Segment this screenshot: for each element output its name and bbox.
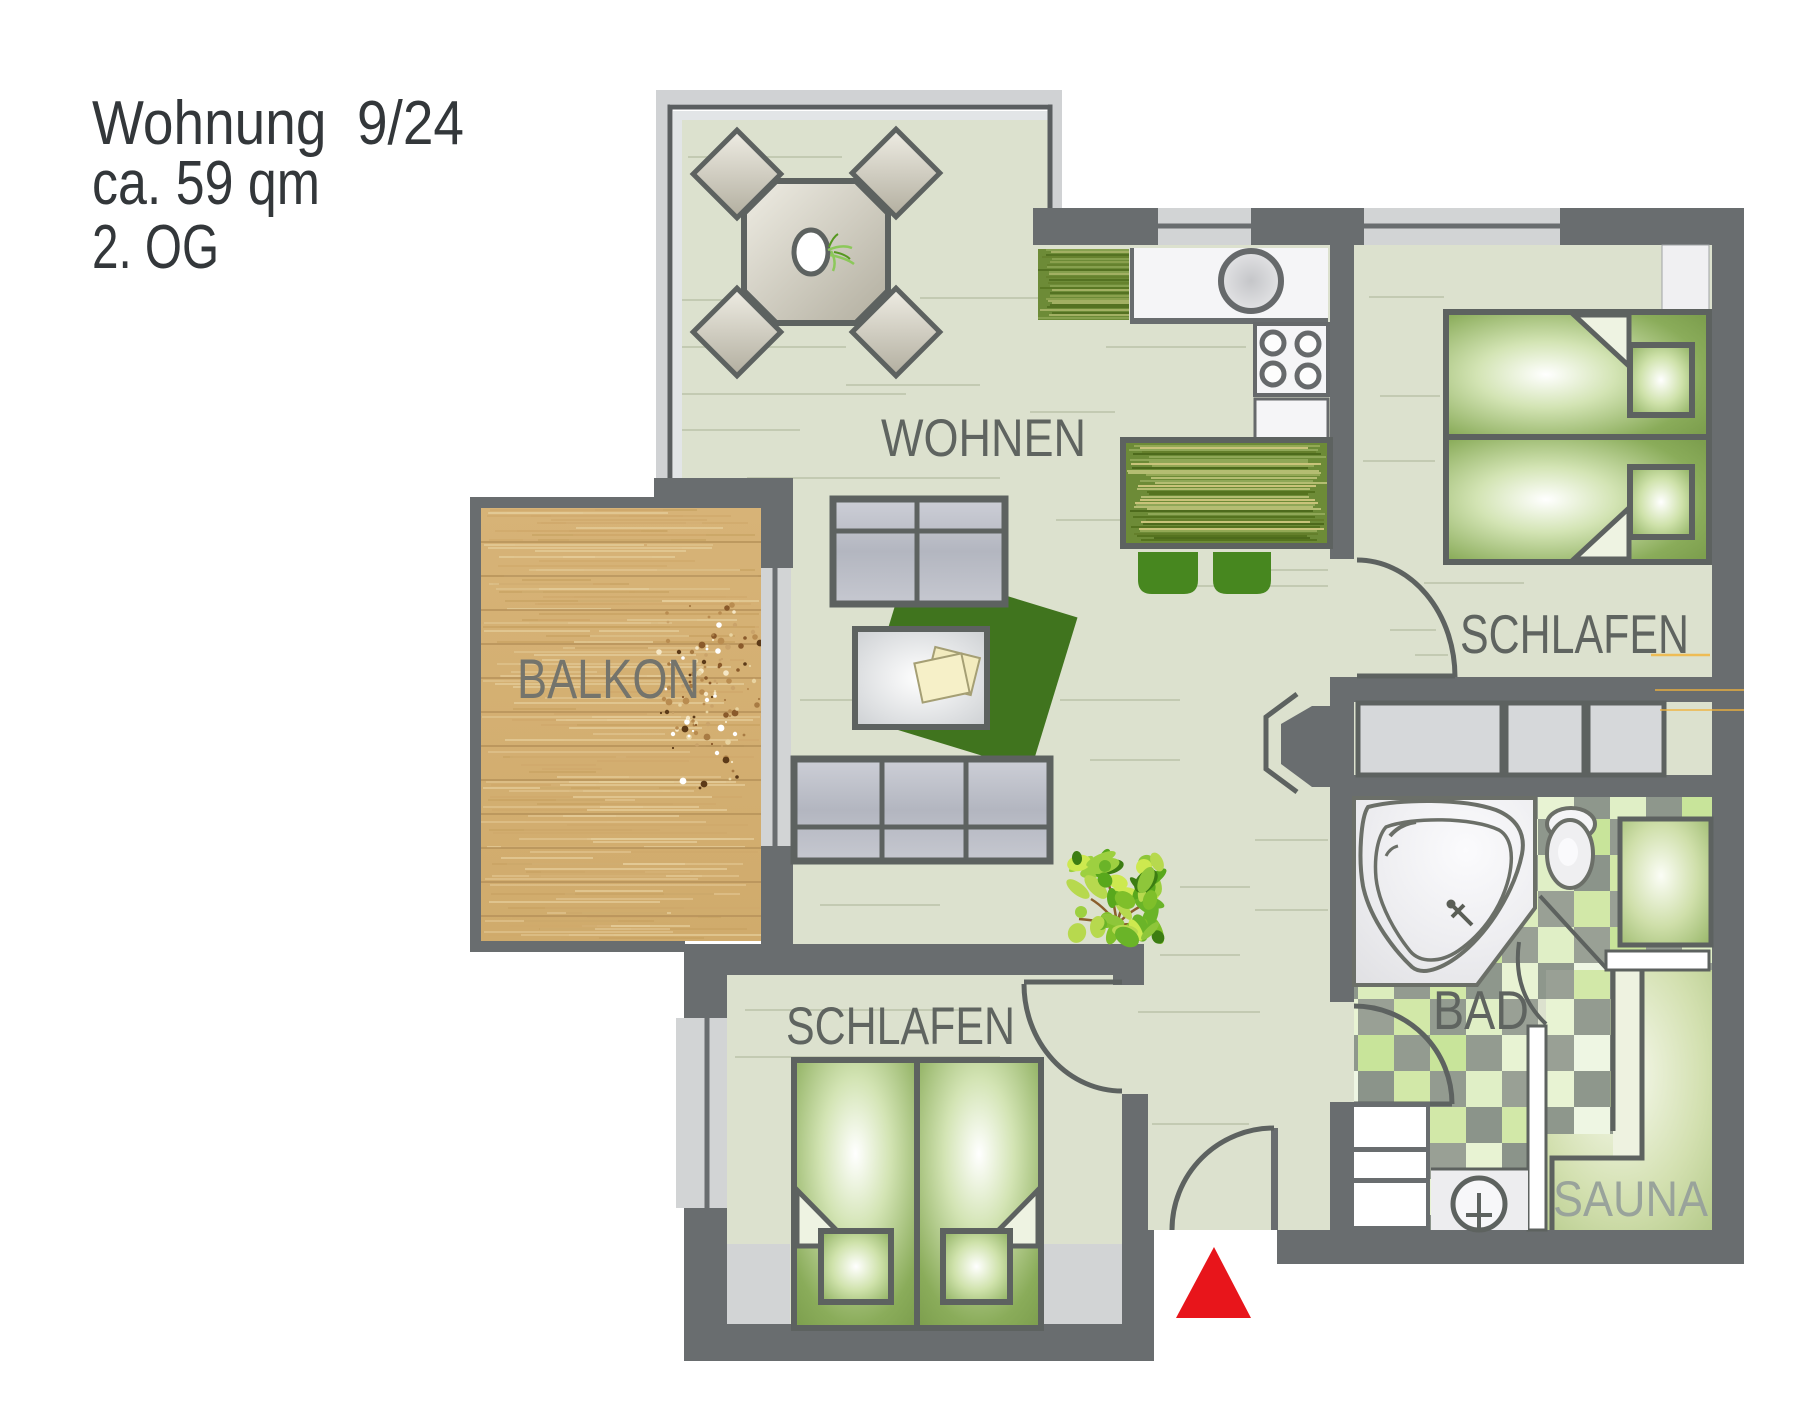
svg-text:WOHNEN: WOHNEN	[881, 409, 1086, 468]
svg-text:BAD: BAD	[1433, 979, 1529, 1041]
svg-text:BALKON: BALKON	[517, 647, 700, 710]
svg-text:SAUNA: SAUNA	[1553, 1171, 1709, 1227]
svg-text:2. OG: 2. OG	[92, 213, 219, 282]
svg-text:SCHLAFEN: SCHLAFEN	[1460, 603, 1689, 665]
svg-text:ca. 59 qm: ca. 59 qm	[92, 149, 320, 218]
svg-text:SCHLAFEN: SCHLAFEN	[786, 997, 1015, 1056]
svg-text:Wohnung 9/24: Wohnung 9/24	[92, 89, 464, 158]
